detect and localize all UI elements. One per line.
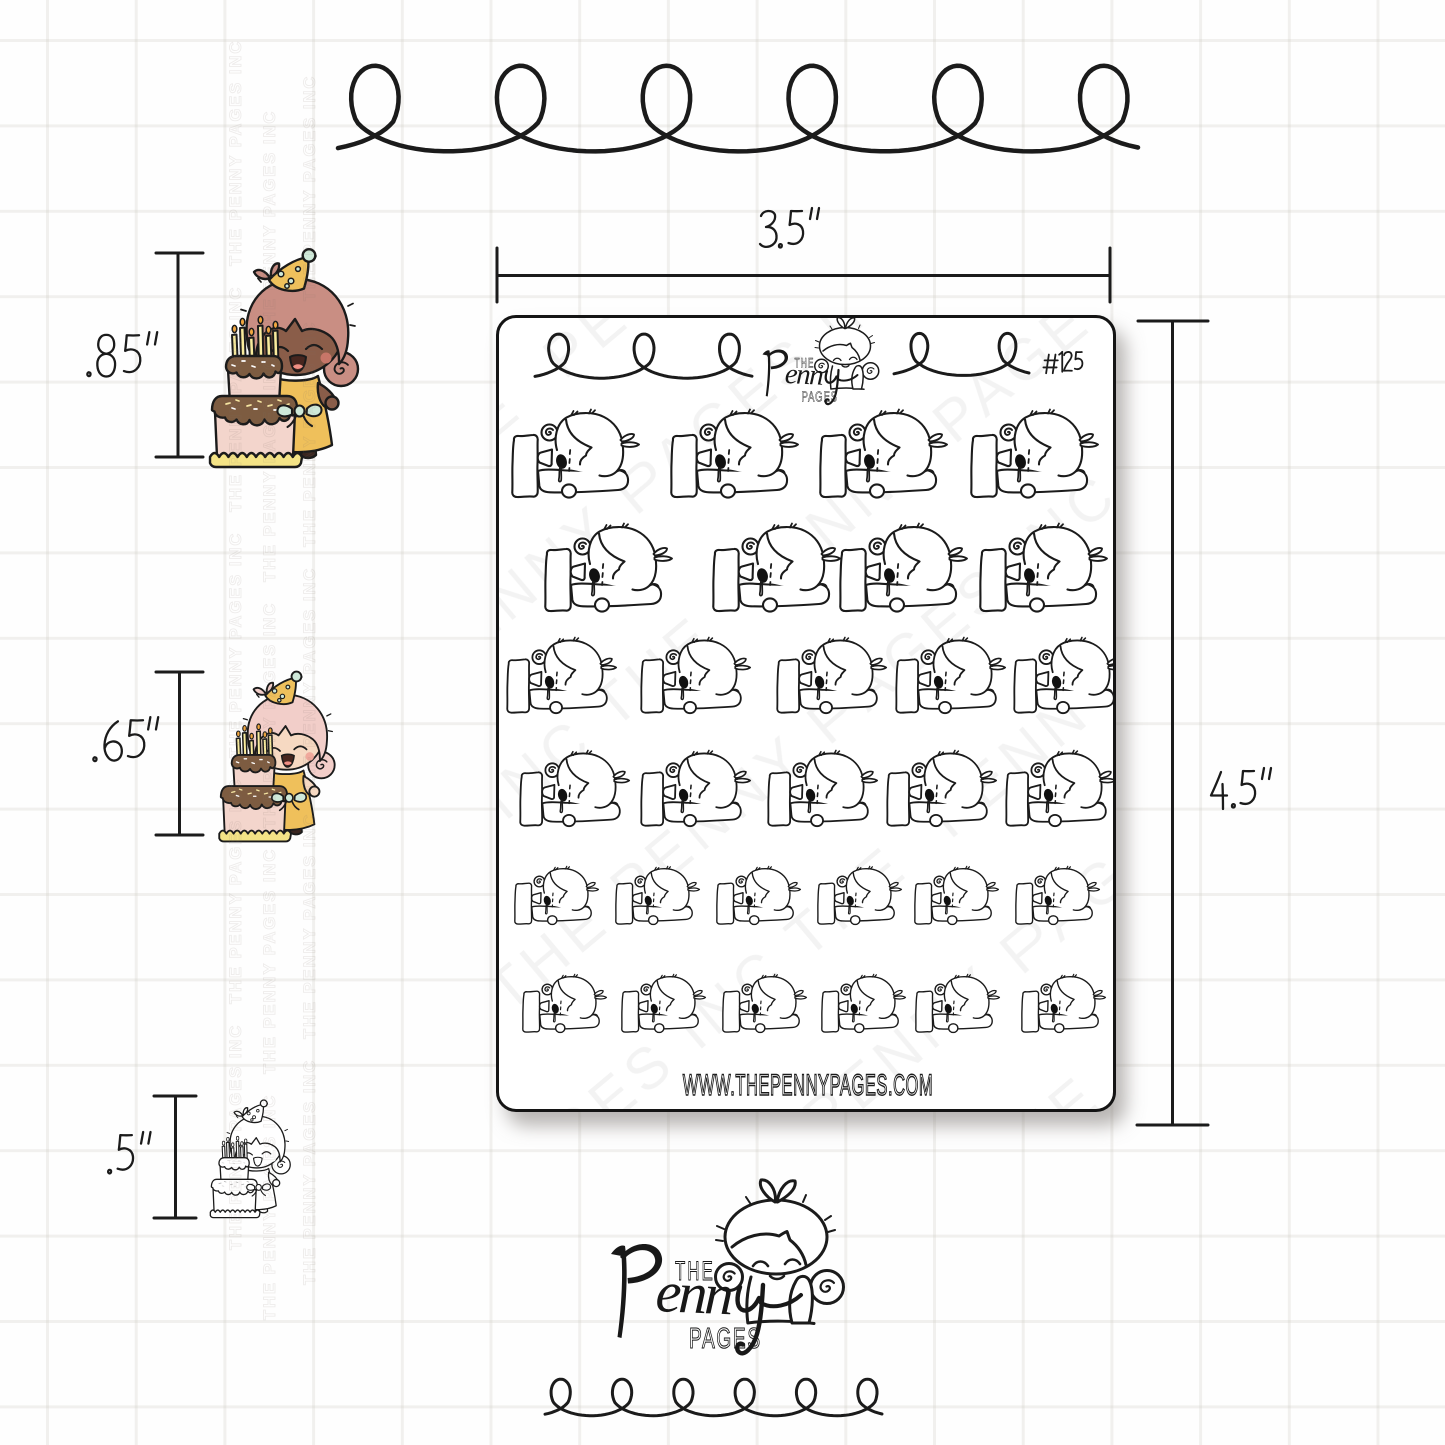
svg-text:THE PENNY PAGES INC THE PENN: THE PENNY PAGES INC THE PENNY PAGES INC …	[301, 75, 319, 1285]
svg-text:THE PENNY PAGES INC THE PENN: THE PENNY PAGES INC THE PENNY PAGES INC …	[261, 110, 279, 1320]
svg-text:THE PENNY PAGES INC THE PENN: THE PENNY PAGES INC THE PENNY PAGES INC …	[227, 40, 245, 1250]
